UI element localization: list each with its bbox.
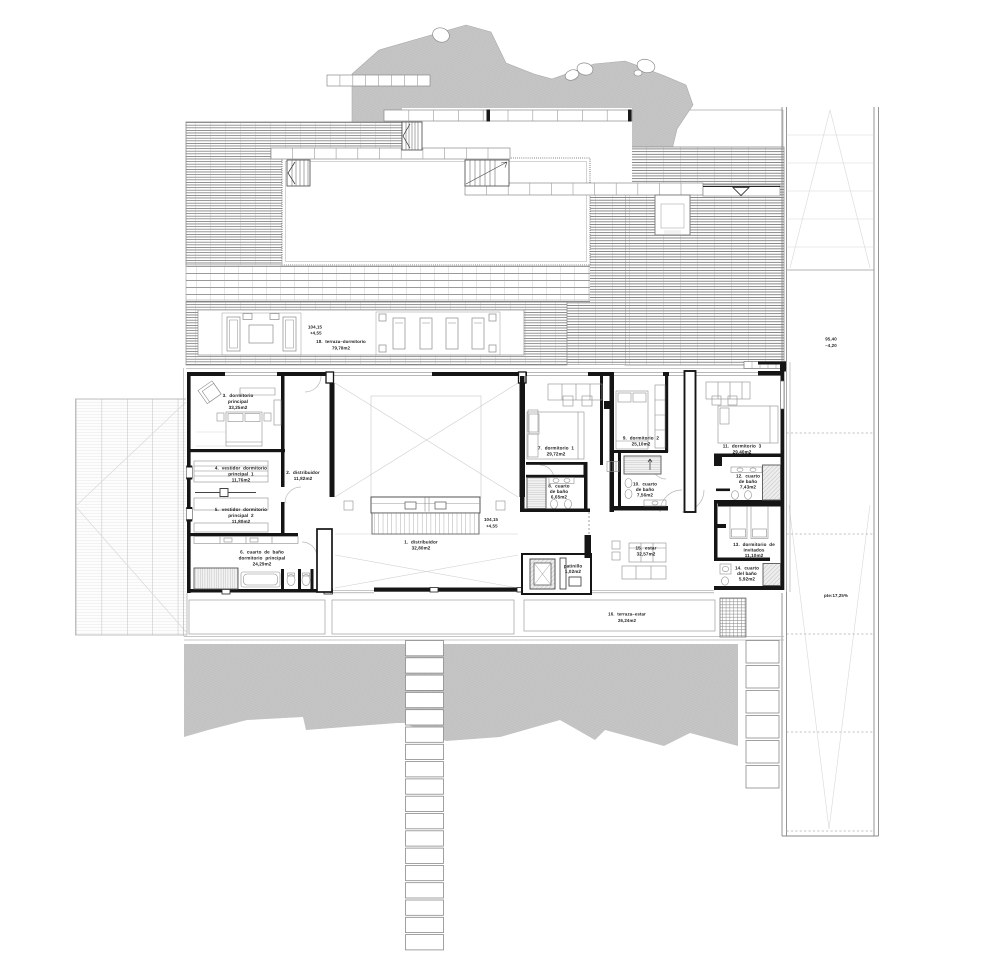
svg-text:–4,20: –4,20: [825, 343, 837, 348]
svg-text:del baño: del baño: [737, 571, 757, 576]
svg-text:+4,55: +4,55: [486, 524, 498, 529]
svg-text:32,57m2: 32,57m2: [637, 552, 656, 557]
svg-text:dormitorio principal: dormitorio principal: [239, 556, 286, 561]
svg-text:7,56m2: 7,56m2: [637, 493, 654, 498]
svg-text:+4,55: +4,55: [310, 331, 322, 336]
svg-text:29,72m2: 29,72m2: [547, 452, 566, 457]
svg-text:7. dormitorio 1: 7. dormitorio 1: [538, 446, 575, 451]
svg-text:1,02m2: 1,02m2: [565, 569, 582, 574]
svg-text:11,82m2: 11,82m2: [294, 476, 313, 481]
svg-text:2. distribuidor: 2. distribuidor: [286, 470, 320, 475]
svg-text:6,65m2: 6,65m2: [551, 495, 568, 500]
svg-text:9. dormitorio 2: 9. dormitorio 2: [623, 436, 660, 441]
svg-text:18. terraza–dormitorio: 18. terraza–dormitorio: [316, 339, 366, 344]
svg-text:de baño: de baño: [636, 487, 654, 492]
svg-text:32,80m2: 32,80m2: [412, 546, 431, 551]
svg-text:104,15: 104,15: [308, 325, 322, 330]
svg-text:6. cuarto de baño: 6. cuarto de baño: [240, 550, 284, 555]
svg-text:11,10m2: 11,10m2: [745, 553, 764, 558]
svg-text:principal 2: principal 2: [228, 513, 254, 518]
svg-text:16. terraza–estar: 16. terraza–estar: [608, 612, 646, 617]
svg-text:26,24m2: 26,24m2: [618, 618, 636, 623]
svg-text:12. cuarto: 12. cuarto: [736, 474, 760, 479]
svg-text:4. vestidor dormitorio: 4. vestidor dormitorio: [215, 466, 267, 471]
svg-text:29,40m2: 29,40m2: [733, 450, 752, 455]
svg-text:de baño: de baño: [739, 479, 757, 484]
svg-text:13. dormitorio de: 13. dormitorio de: [733, 542, 775, 547]
svg-text:invitados: invitados: [743, 548, 764, 553]
svg-text:25,10m2: 25,10m2: [632, 442, 651, 447]
svg-text:14. cuarto: 14. cuarto: [735, 566, 759, 571]
svg-text:pte:17,25%: pte:17,25%: [824, 593, 848, 598]
svg-text:patinillo: patinillo: [564, 564, 583, 569]
svg-text:11. dormitorio 3: 11. dormitorio 3: [723, 444, 762, 449]
svg-text:10. cuarto: 10. cuarto: [633, 482, 657, 487]
svg-text:24,29m2: 24,29m2: [253, 562, 272, 567]
svg-text:95,40: 95,40: [825, 337, 837, 342]
svg-text:7,43m2: 7,43m2: [740, 485, 757, 490]
svg-text:11,80m2: 11,80m2: [232, 519, 251, 524]
svg-text:79,78m2: 79,78m2: [332, 346, 350, 351]
svg-text:principal: principal: [228, 399, 248, 404]
svg-text:104,15: 104,15: [484, 517, 498, 522]
svg-text:de baño: de baño: [550, 489, 568, 494]
svg-text:33,25m2: 33,25m2: [229, 405, 248, 410]
svg-text:15. estar: 15. estar: [636, 546, 657, 551]
svg-text:5,92m2: 5,92m2: [739, 577, 756, 582]
svg-text:8. cuarto: 8. cuarto: [548, 484, 570, 489]
svg-text:5. vestidor dormitorio: 5. vestidor dormitorio: [215, 507, 267, 512]
svg-text:3. dormitorio: 3. dormitorio: [223, 393, 254, 398]
svg-text:principal 1: principal 1: [228, 472, 254, 477]
svg-text:11,76m2: 11,76m2: [232, 478, 251, 483]
svg-text:1. distribuidor: 1. distribuidor: [404, 540, 438, 545]
